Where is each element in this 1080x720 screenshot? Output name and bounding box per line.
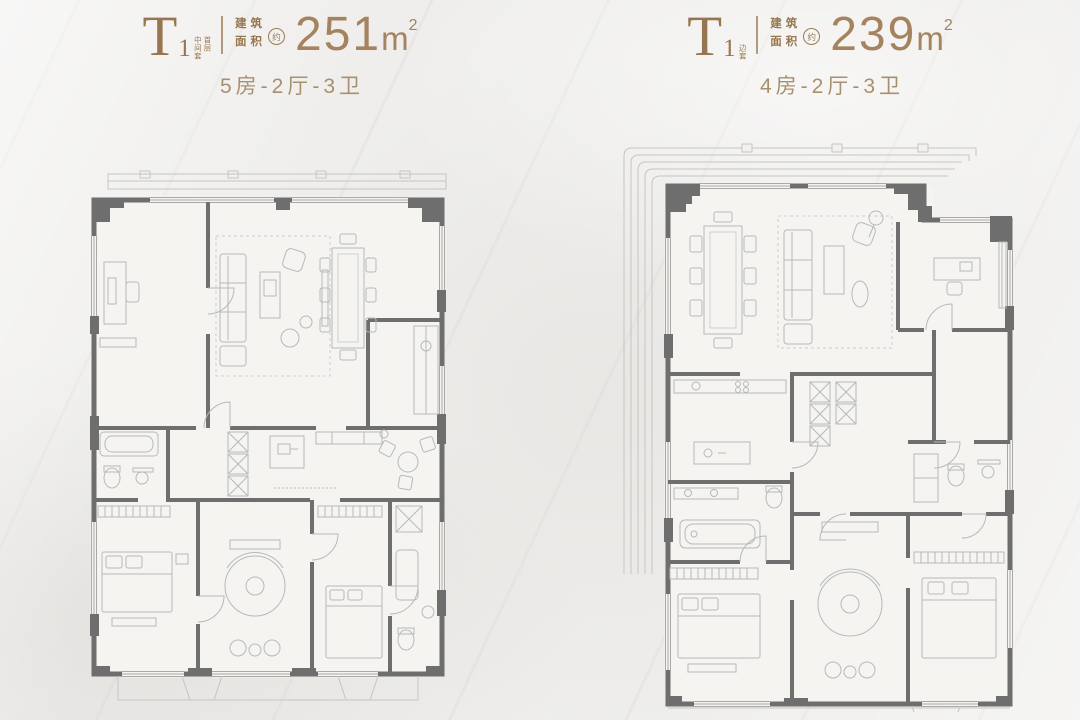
floor-area	[94, 200, 442, 674]
unit-type-letter: T	[142, 12, 177, 62]
title-divider	[756, 16, 758, 54]
unit-type-tags: 中间套 首层	[193, 36, 211, 60]
area-label-line2: 面积	[235, 34, 266, 52]
balcony-bottom	[118, 676, 418, 700]
area-label-line1: 建筑	[770, 16, 801, 34]
unit-tag-secondary: 首层	[202, 36, 211, 60]
area-value: 251	[295, 12, 381, 58]
area-label: 建筑 面积	[770, 12, 801, 56]
layout-config: 5房-2厅-3卫	[220, 70, 364, 100]
title-divider	[221, 16, 223, 54]
floor-area	[668, 186, 934, 704]
approx-circle-mark: 约	[803, 28, 820, 45]
unit-type-subgroup: 1 中间套 首层	[178, 12, 211, 62]
floor-plan-left	[78, 170, 456, 705]
poster-page: T 1 中间套 首层 建筑 面积 约 251 m2 5房-2厅-3卫 T 1	[0, 0, 1080, 720]
area-unit-sup: 2	[409, 18, 418, 34]
unit-type-number: 1	[723, 36, 736, 61]
area-unit-base: m	[381, 22, 409, 55]
unit-type-letter: T	[687, 12, 722, 62]
unit-tag-primary: 中间套	[193, 36, 202, 60]
floor-plan-right	[622, 142, 1018, 712]
unit-type-subgroup: 1 边套	[723, 12, 746, 62]
area-unit: m2	[916, 22, 952, 55]
title-row-right: T 1 边套 建筑 面积 约 239 m2	[687, 12, 952, 62]
area-value: 239	[830, 12, 916, 58]
area-unit-sup: 2	[944, 18, 953, 34]
area-unit-base: m	[916, 22, 944, 55]
layout-config: 4房-2厅-3卫	[760, 70, 904, 100]
unit-title-right: T 1 边套 建筑 面积 约 239 m2 4房-2厅-3卫	[540, 12, 1080, 100]
unit-title-left: T 1 中间套 首层 建筑 面积 约 251 m2 5房-2厅-3卫	[0, 12, 540, 100]
unit-type-number: 1	[178, 36, 191, 61]
area-unit: m2	[381, 22, 417, 55]
floor-area-wing	[898, 220, 1010, 704]
unit-tag-primary: 边套	[738, 44, 747, 60]
area-label-line1: 建筑	[235, 16, 266, 34]
area-label: 建筑 面积	[235, 12, 266, 56]
title-row-left: T 1 中间套 首层 建筑 面积 约 251 m2	[142, 12, 417, 62]
approx-circle-mark: 约	[268, 28, 285, 45]
area-label-line2: 面积	[770, 34, 801, 52]
unit-type-tags: 边套	[738, 44, 747, 60]
terrace-top	[108, 171, 446, 189]
